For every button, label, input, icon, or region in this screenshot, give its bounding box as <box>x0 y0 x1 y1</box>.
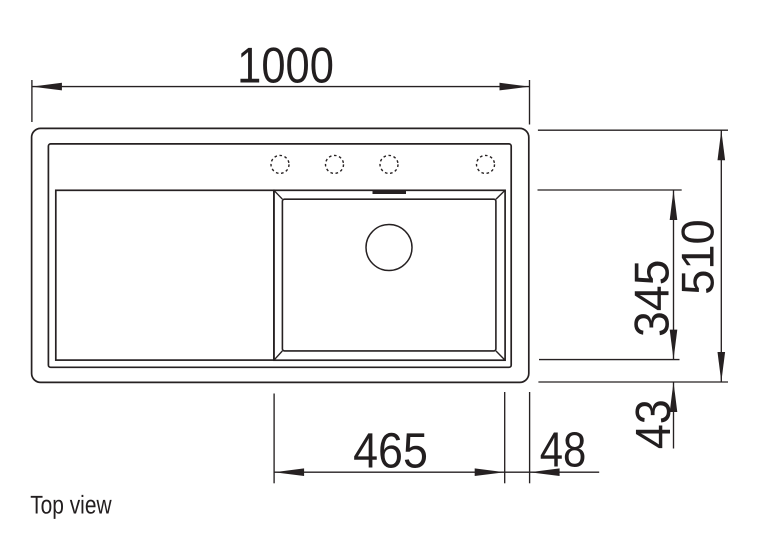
svg-text:43: 43 <box>626 399 681 449</box>
svg-text:345: 345 <box>626 260 680 338</box>
svg-text:1000: 1000 <box>237 37 334 94</box>
svg-text:465: 465 <box>353 423 428 479</box>
svg-text:48: 48 <box>540 423 587 478</box>
svg-text:Top view: Top view <box>30 491 112 519</box>
